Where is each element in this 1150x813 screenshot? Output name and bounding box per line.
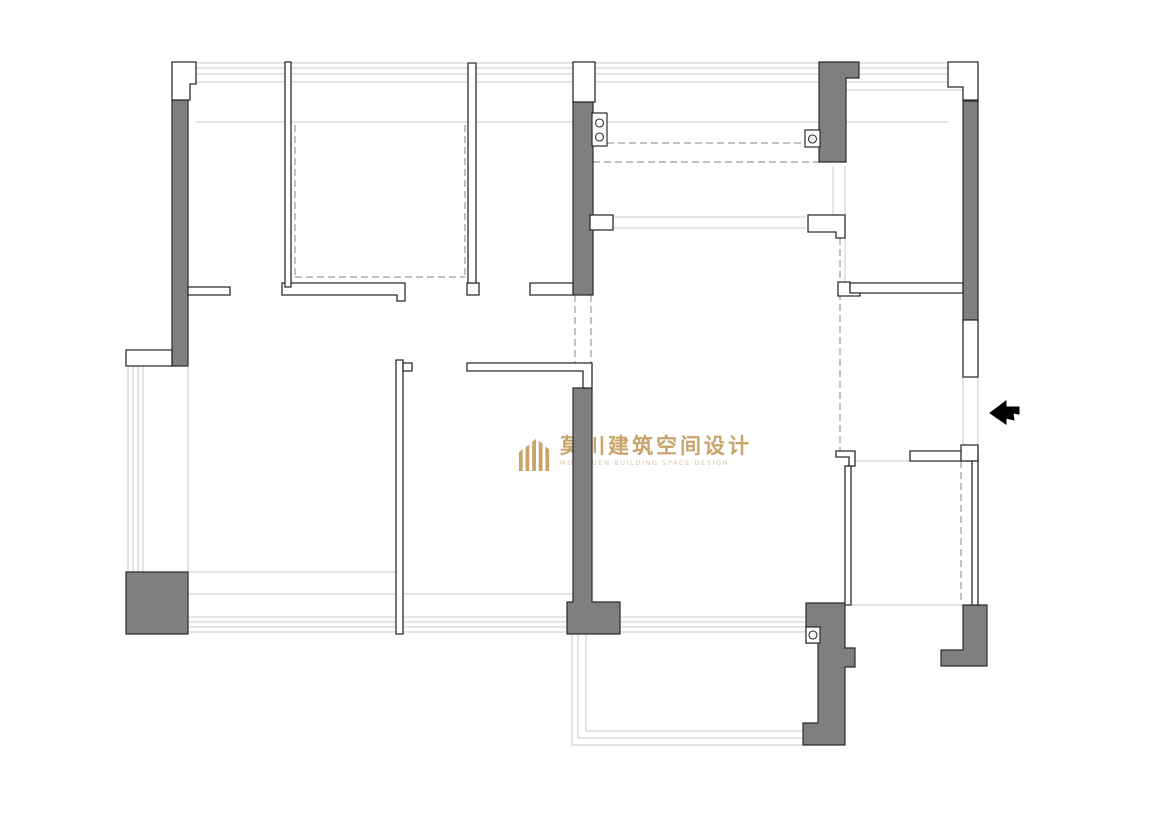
wall-outline	[188, 287, 230, 295]
wall-outline	[972, 461, 978, 605]
wall-outline	[285, 62, 291, 287]
solid-wall	[803, 603, 855, 745]
wall-outline	[530, 283, 573, 295]
wall-outline	[590, 215, 613, 230]
wall-outline	[808, 215, 845, 238]
wall-outline	[850, 283, 963, 293]
wall-outline	[403, 363, 412, 371]
solid-wall	[126, 572, 188, 634]
entry-direction-arrow	[990, 401, 1019, 424]
solid-wall	[573, 102, 593, 295]
wall-outline	[836, 451, 855, 466]
wall-outline	[467, 283, 479, 295]
wall-outline	[126, 350, 172, 366]
floor-plan-page: 莫川建筑空间设计 MOKCHUEN BUILDING SPACE DESIGN	[0, 0, 1150, 813]
switch-box	[805, 130, 820, 147]
wall-outline	[282, 283, 405, 301]
solid-wall	[819, 62, 859, 162]
solid-wall	[567, 388, 620, 634]
switch-box	[806, 627, 820, 643]
wall-outline	[961, 445, 978, 461]
wall-outline	[468, 63, 476, 283]
wall-outline	[172, 62, 196, 100]
solid-wall	[963, 101, 978, 320]
wall-outline	[845, 466, 851, 605]
solid-wall	[172, 100, 188, 366]
wall-outline	[963, 320, 978, 377]
wall-outline	[573, 62, 595, 102]
wall-outline	[948, 62, 978, 100]
wall-outline	[396, 360, 403, 634]
wall-outline	[467, 363, 592, 388]
solid-wall	[941, 605, 987, 666]
floor-plan-drawing	[0, 0, 1150, 813]
